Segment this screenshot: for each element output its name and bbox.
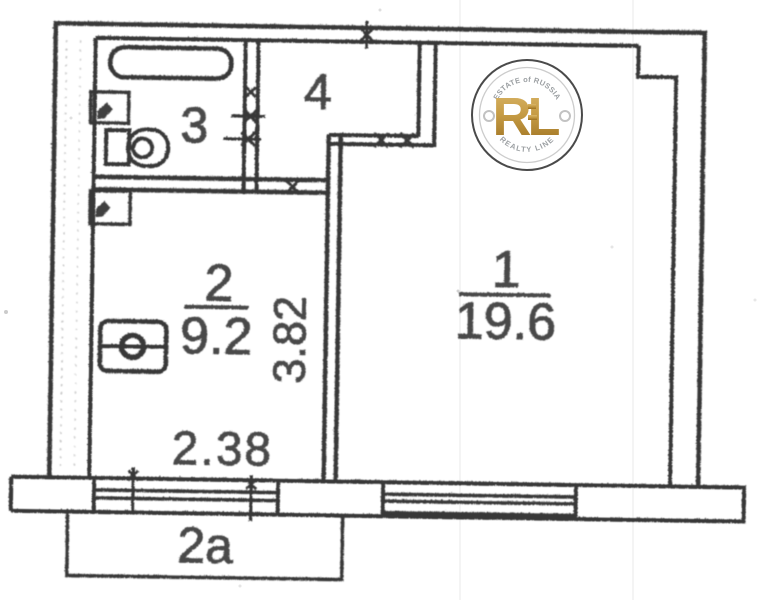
svg-text:2a: 2a bbox=[176, 516, 233, 573]
svg-text:1: 1 bbox=[491, 240, 521, 298]
svg-text:9.2: 9.2 bbox=[179, 306, 252, 365]
svg-text:2.38: 2.38 bbox=[171, 421, 273, 475]
svg-text:4: 4 bbox=[303, 63, 332, 119]
svg-text:3.82: 3.82 bbox=[263, 295, 315, 383]
svg-text:3: 3 bbox=[179, 96, 208, 152]
svg-text:19.6: 19.6 bbox=[454, 291, 556, 350]
svg-text:R: R bbox=[493, 87, 532, 147]
svg-text:2: 2 bbox=[203, 254, 233, 312]
